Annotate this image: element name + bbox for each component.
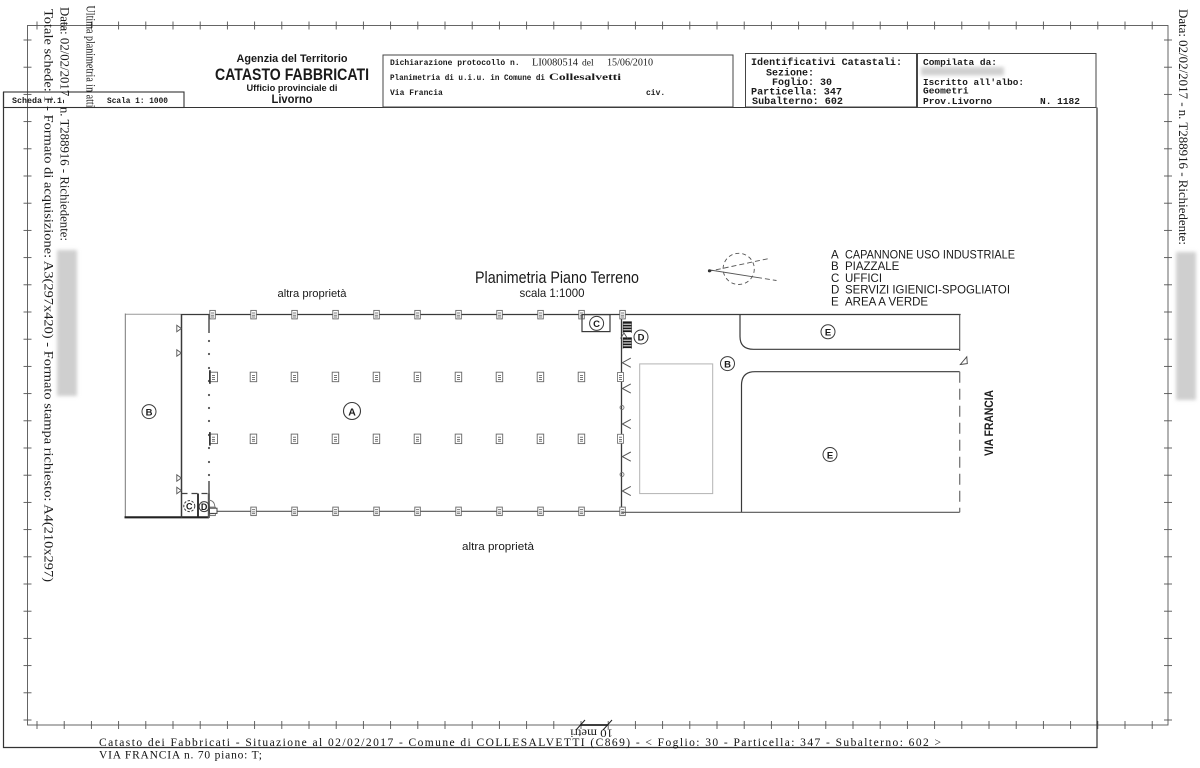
svg-text:Via Francia: Via Francia — [390, 89, 443, 98]
svg-text:D: D — [201, 502, 208, 512]
svg-text:Ultima planimetria in atti: Ultima planimetria in atti — [84, 6, 98, 108]
svg-text:CAPANNONE USO INDUSTRIALE: CAPANNONE USO INDUSTRIALE — [845, 250, 1015, 262]
svg-text:Geometri: Geometri — [923, 86, 969, 97]
svg-text:Compilata da:: Compilata da: — [923, 57, 997, 68]
svg-text:E: E — [831, 296, 839, 308]
svg-text:E: E — [825, 328, 831, 339]
svg-text:C: C — [831, 273, 839, 285]
svg-text:15/06/2010: 15/06/2010 — [607, 58, 653, 69]
svg-text:civ.: civ. — [646, 89, 665, 98]
svg-text:C: C — [186, 502, 193, 512]
svg-text:altra proprietà: altra proprietà — [278, 288, 348, 300]
svg-text:Collesalvetti: Collesalvetti — [549, 73, 621, 83]
svg-text:D: D — [638, 333, 645, 344]
svg-text:Subalterno: 602: Subalterno: 602 — [752, 96, 843, 108]
svg-text:B: B — [831, 261, 839, 273]
svg-text:CATASTO FABBRICATI: CATASTO FABBRICATI — [215, 66, 369, 84]
svg-text:C: C — [593, 319, 600, 330]
svg-text:Ufficio provinciale di: Ufficio provinciale di — [247, 83, 338, 94]
svg-text:A: A — [831, 250, 839, 262]
svg-text:Totale schede: 1 - Formato di: Totale schede: 1 - Formato di acquisizio… — [42, 9, 56, 582]
svg-text:SERVIZI IGIENICI-SPOGLIATOI: SERVIZI IGIENICI-SPOGLIATOI — [845, 285, 1010, 297]
svg-text:D: D — [831, 285, 839, 297]
svg-text:Livorno: Livorno — [272, 94, 313, 106]
svg-text:Agenzia del Territorio: Agenzia del Territorio — [237, 53, 348, 65]
svg-text:LI0080514: LI0080514 — [532, 58, 578, 69]
svg-text:UFFICI: UFFICI — [845, 273, 882, 285]
svg-text:del: del — [582, 59, 594, 69]
svg-text:AREA A VERDE: AREA A VERDE — [845, 296, 928, 308]
svg-text:A: A — [348, 406, 356, 418]
svg-text:VIA FRANCIA: VIA FRANCIA — [984, 390, 996, 456]
svg-text:Scala 1: 1000: Scala 1: 1000 — [107, 96, 168, 106]
svg-text:Data: 02/02/2017 - n. T288916: Data: 02/02/2017 - n. T288916 - Richiede… — [58, 7, 72, 241]
svg-text:VIA FRANCIA n. 70 piano: T;: VIA FRANCIA n. 70 piano: T; — [99, 750, 262, 762]
svg-text:altra proprietà: altra proprietà — [462, 541, 535, 553]
svg-text:N. 1182: N. 1182 — [1040, 96, 1080, 107]
svg-text:scala 1:1000: scala 1:1000 — [520, 286, 585, 300]
svg-text:Prov.Livorno: Prov.Livorno — [923, 96, 992, 107]
svg-text:B: B — [146, 407, 153, 418]
svg-text:Planimetria Piano Terreno: Planimetria Piano Terreno — [475, 269, 639, 287]
svg-text:PIAZZALE: PIAZZALE — [845, 261, 900, 273]
svg-text:Identificativi Catastali:: Identificativi Catastali: — [751, 57, 902, 69]
svg-text:Planimetria di u.i.u. in Comun: Planimetria di u.i.u. in Comune di — [390, 74, 545, 83]
svg-text:B: B — [724, 359, 731, 370]
svg-text:Data: 02/02/2017 - n. T288916: Data: 02/02/2017 - n. T288916 - Richiede… — [1176, 9, 1191, 245]
svg-text:Dichiarazione protocollo n.: Dichiarazione protocollo n. — [390, 59, 520, 68]
svg-text:E: E — [827, 450, 833, 461]
svg-text:Catasto dei Fabbricati - Situa: Catasto dei Fabbricati - Situazione al 0… — [99, 737, 941, 749]
